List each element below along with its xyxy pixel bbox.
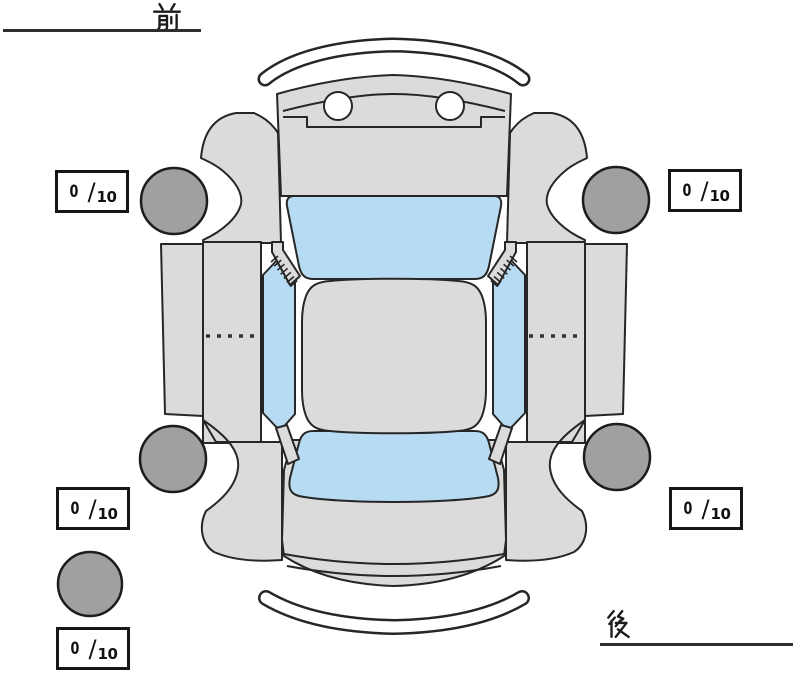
tread-box-rear-right: 0 / 10: [669, 487, 743, 530]
tread-box-front-left: 0 / 10: [55, 170, 129, 213]
roof-panel: [302, 279, 486, 434]
front-bumper: [265, 45, 523, 79]
tread-slash: /: [701, 497, 709, 521]
front-left-fender: [201, 113, 281, 243]
rear-bumper: [266, 598, 522, 627]
front-right-fender: [507, 113, 587, 243]
car-top-view: [0, 0, 800, 675]
tread-box-rear-left: 0 / 10: [56, 487, 130, 530]
tread-slash: /: [700, 179, 708, 203]
left-rocker-panel: [161, 244, 203, 416]
tread-box-spare: 0 / 10: [56, 627, 130, 670]
tread-box-front-right: 0 / 10: [668, 169, 742, 212]
left-door-panel: [203, 242, 261, 443]
washer-nozzle-right: [436, 92, 464, 120]
tread-max: 10: [97, 188, 117, 206]
tread-value: 0: [682, 181, 691, 201]
tire-front-left: [141, 168, 207, 234]
tread-value: 0: [70, 499, 79, 519]
tread-max: 10: [711, 505, 731, 523]
tread-value: 0: [70, 639, 79, 659]
tire-front-right: [583, 167, 649, 233]
tread-slash: /: [87, 180, 95, 204]
washer-nozzle-left: [324, 92, 352, 120]
tire-rear-right: [584, 424, 650, 490]
rear-window: [289, 431, 498, 502]
tread-value: 0: [69, 182, 78, 202]
right-door-panel: [527, 242, 585, 443]
tire-rear-left: [140, 426, 206, 492]
windshield: [287, 196, 501, 279]
tread-slash: /: [88, 637, 96, 661]
tread-value: 0: [683, 499, 692, 519]
tread-slash: /: [88, 497, 96, 521]
right-rocker-panel: [585, 244, 627, 416]
tire-spare: [58, 552, 122, 616]
tread-max: 10: [710, 187, 730, 205]
tire-tread-car-diagram: 0 / 10 0 / 10 0 / 10 0 / 10 0 / 10: [0, 0, 800, 675]
tread-max: 10: [98, 645, 118, 663]
tread-max: 10: [98, 505, 118, 523]
